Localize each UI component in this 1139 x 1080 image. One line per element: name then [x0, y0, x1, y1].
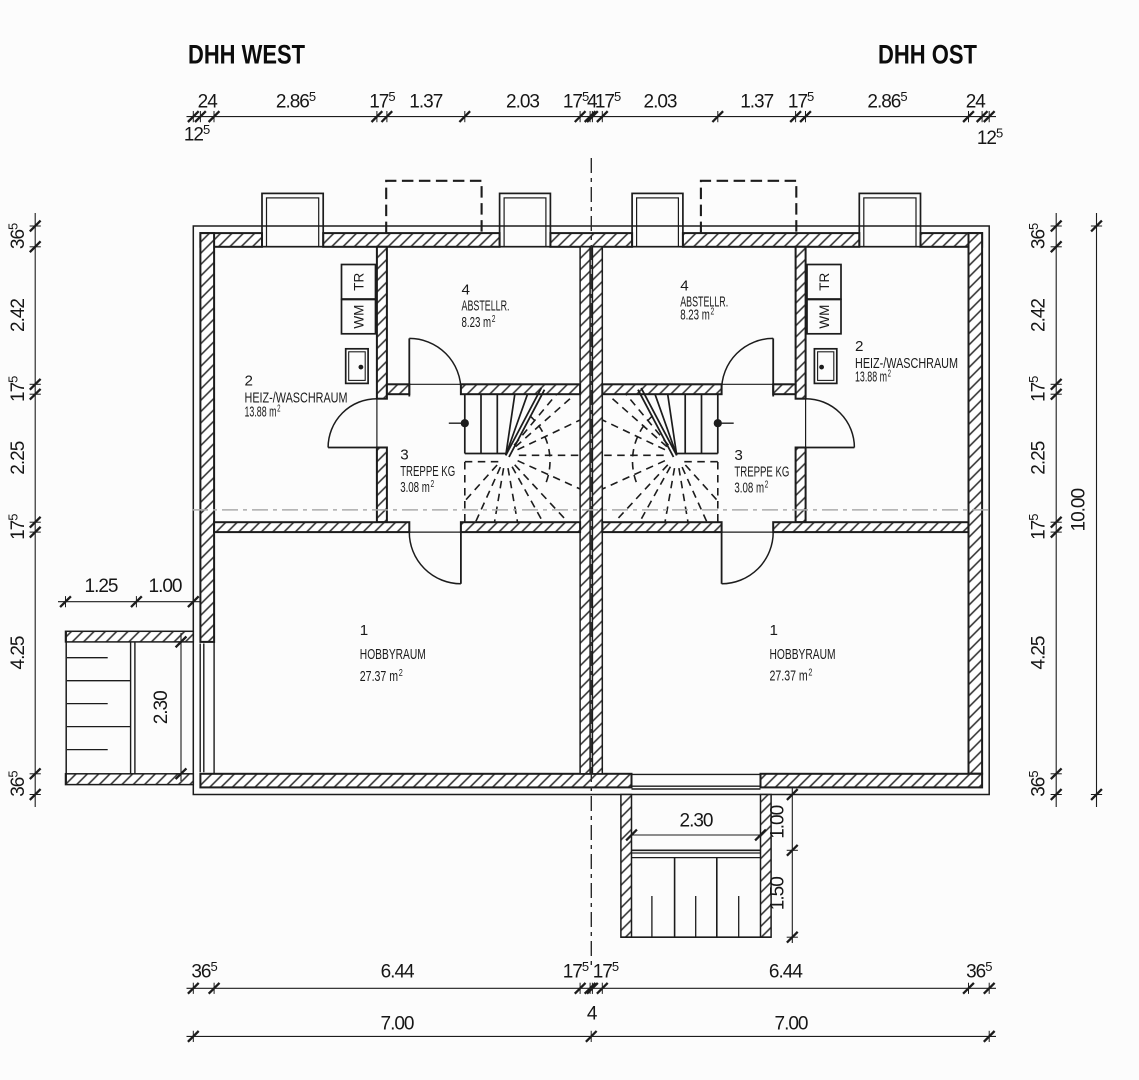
svg-text:3.08 m2: 3.08 m2: [734, 478, 768, 496]
svg-text:3: 3: [734, 447, 742, 464]
svg-text:2.30: 2.30: [151, 691, 172, 724]
svg-text:TR: TR: [817, 272, 832, 290]
svg-text:2.03: 2.03: [506, 92, 539, 113]
svg-text:13.88 m2: 13.88 m2: [855, 367, 891, 385]
svg-text:1.37: 1.37: [409, 92, 442, 113]
svg-text:WM: WM: [351, 305, 366, 329]
svg-text:7.00: 7.00: [775, 1014, 808, 1035]
svg-text:8.23 m2: 8.23 m2: [680, 306, 714, 324]
svg-text:4.25: 4.25: [1029, 636, 1050, 669]
svg-text:1.00: 1.00: [768, 805, 789, 838]
svg-text:2.30: 2.30: [680, 811, 713, 832]
svg-text:1.37: 1.37: [740, 92, 773, 113]
svg-text:4: 4: [462, 281, 470, 298]
svg-text:1.25: 1.25: [85, 576, 118, 597]
svg-text:2.25: 2.25: [1029, 441, 1050, 474]
svg-text:4: 4: [680, 278, 688, 295]
svg-text:27.37 m2: 27.37 m2: [360, 667, 403, 685]
svg-text:7.00: 7.00: [381, 1014, 414, 1035]
svg-text:3.08 m2: 3.08 m2: [400, 478, 434, 496]
svg-text:6.44: 6.44: [769, 962, 803, 983]
svg-text:13.88 m2: 13.88 m2: [245, 402, 281, 420]
svg-text:HOBBYRAUM: HOBBYRAUM: [770, 646, 836, 663]
svg-text:TR: TR: [351, 272, 366, 290]
svg-text:DHH OST: DHH OST: [878, 40, 977, 70]
svg-text:1.50: 1.50: [768, 877, 789, 910]
svg-text:2.42: 2.42: [1029, 299, 1050, 332]
svg-text:TREPPE KG: TREPPE KG: [734, 463, 789, 480]
svg-text:DHH WEST: DHH WEST: [188, 40, 305, 70]
svg-text:ABSTELLR.: ABSTELLR.: [462, 298, 510, 315]
svg-text:4.25: 4.25: [8, 636, 29, 669]
svg-text:2.03: 2.03: [644, 92, 677, 113]
svg-text:2: 2: [855, 338, 863, 355]
svg-text:2.42: 2.42: [8, 299, 29, 332]
svg-text:8.23 m2: 8.23 m2: [462, 313, 496, 331]
svg-text:6.44: 6.44: [381, 962, 415, 983]
svg-text:24: 24: [966, 92, 987, 113]
svg-text:4: 4: [587, 1004, 598, 1025]
svg-text:3: 3: [400, 447, 408, 464]
svg-text:27.37 m2: 27.37 m2: [770, 667, 813, 685]
svg-text:TREPPE KG: TREPPE KG: [400, 463, 455, 480]
svg-text:24: 24: [198, 92, 219, 113]
svg-text:1: 1: [770, 622, 778, 639]
svg-text:WM: WM: [817, 305, 832, 329]
svg-text:1: 1: [360, 622, 368, 639]
svg-text:2: 2: [245, 373, 253, 390]
svg-text:1.00: 1.00: [149, 576, 182, 597]
svg-text:HOBBYRAUM: HOBBYRAUM: [360, 646, 426, 663]
svg-text:2.25: 2.25: [8, 441, 29, 474]
svg-text:10.00: 10.00: [1069, 488, 1090, 531]
